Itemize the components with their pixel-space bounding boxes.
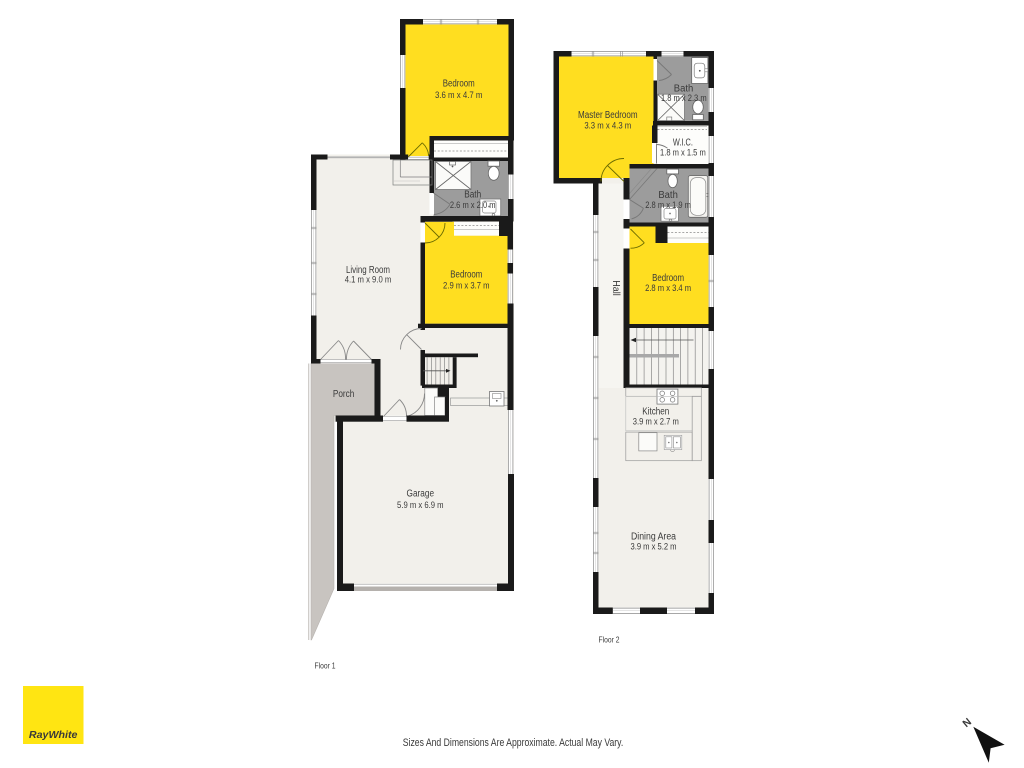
svg-text:Sizes And Dimensions Are Appro: Sizes And Dimensions Are Approximate. Ac… <box>403 737 624 749</box>
svg-text:Master Bedroom: Master Bedroom <box>578 110 638 121</box>
svg-text:1.8 m x 1.5 m: 1.8 m x 1.5 m <box>660 148 706 158</box>
svg-text:Hall: Hall <box>610 280 621 296</box>
svg-text:2.8 m x 1.9 m: 2.8 m x 1.9 m <box>645 200 691 210</box>
svg-text:2.6 m x 2.0 m: 2.6 m x 2.0 m <box>450 200 496 210</box>
svg-text:2.8 m x 3.4 m: 2.8 m x 3.4 m <box>645 283 691 293</box>
svg-text:Floor 1: Floor 1 <box>315 662 336 671</box>
svg-text:5.9 m x 6.9 m: 5.9 m x 6.9 m <box>397 500 444 510</box>
svg-text:2.9 m x 3.7 m: 2.9 m x 3.7 m <box>443 281 490 291</box>
svg-text:Bedroom: Bedroom <box>450 270 482 281</box>
svg-text:3.9 m x 5.2 m: 3.9 m x 5.2 m <box>631 542 677 552</box>
svg-text:Garage: Garage <box>407 489 435 500</box>
svg-text:3.9 m x 2.7 m: 3.9 m x 2.7 m <box>633 416 679 426</box>
svg-text:3.6 m x 4.7 m: 3.6 m x 4.7 m <box>435 90 483 100</box>
svg-text:4.1 m x 9.0 m: 4.1 m x 9.0 m <box>345 275 392 285</box>
svg-text:3.3 m x 4.3 m: 3.3 m x 4.3 m <box>584 121 631 131</box>
svg-text:Bedroom: Bedroom <box>443 79 475 90</box>
svg-text:1.8 m x 2.3 m: 1.8 m x 2.3 m <box>661 93 707 103</box>
svg-text:Floor 2: Floor 2 <box>599 636 620 645</box>
svg-text:Porch: Porch <box>333 389 355 400</box>
svg-text:RayWhite: RayWhite <box>29 730 78 741</box>
